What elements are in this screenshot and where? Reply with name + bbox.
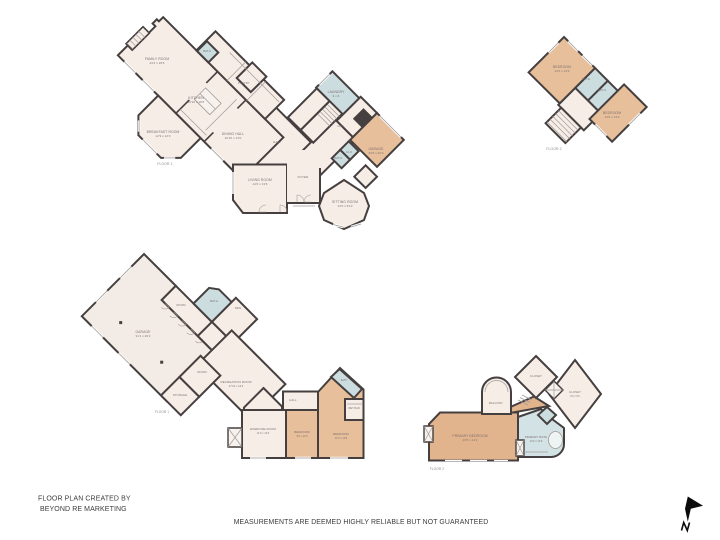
- svg-text:BEYOND RE MARKETING: BEYOND RE MARKETING: [40, 506, 127, 513]
- svg-text:FLOOR 1: FLOOR 1: [157, 162, 172, 166]
- svg-text:FLOOR PLAN CREATED BY: FLOOR PLAN CREATED BY: [38, 496, 131, 503]
- svg-text:9'0 x 12'9: 9'0 x 12'9: [296, 435, 308, 438]
- svg-text:BATH: BATH: [582, 77, 590, 81]
- svg-text:19'10 x 18'6: 19'10 x 18'6: [188, 100, 205, 104]
- svg-text:HALL: HALL: [289, 398, 297, 402]
- svg-text:14'0 x 13'0: 14'0 x 13'0: [605, 115, 620, 119]
- svg-text:BEDROOM: BEDROOM: [294, 430, 310, 434]
- svg-text:RECREATION ROOM: RECREATION ROOM: [220, 380, 252, 384]
- svg-text:BALCONY: BALCONY: [489, 401, 503, 405]
- svg-text:31'1 x 40'2: 31'1 x 40'2: [136, 334, 151, 338]
- svg-text:12'0 x 10'0: 12'0 x 10'0: [530, 440, 543, 443]
- svg-text:FOYER: FOYER: [298, 175, 310, 179]
- svg-text:HALL: HALL: [273, 140, 281, 144]
- svg-text:CLOSET: CLOSET: [569, 390, 581, 394]
- svg-text:CLOSET: CLOSET: [530, 374, 542, 378]
- svg-text:13'0 x 9'10: 13'0 x 9'10: [338, 204, 353, 208]
- svg-text:BEDROOM: BEDROOM: [333, 432, 349, 436]
- svg-text:PRIMARY BATH: PRIMARY BATH: [525, 435, 548, 439]
- svg-text:20'5 x 14'2: 20'5 x 14'2: [463, 438, 478, 442]
- svg-text:ROOM: ROOM: [197, 370, 207, 374]
- svg-text:BATH: BATH: [334, 156, 342, 160]
- svg-text:WET BAR: WET BAR: [348, 407, 360, 410]
- svg-text:BATH: BATH: [598, 88, 606, 92]
- svg-text:DEN: DEN: [235, 306, 241, 310]
- svg-text:14'0 x 13'0: 14'0 x 13'0: [555, 69, 570, 73]
- svg-text:FLOOR 2: FLOOR 2: [546, 147, 561, 151]
- svg-text:27'10 x 14'2: 27'10 x 14'2: [229, 385, 244, 388]
- svg-text:11'6 x 12'9: 11'6 x 12'9: [257, 432, 270, 435]
- svg-text:HALL: HALL: [338, 124, 345, 128]
- svg-text:BATH: BATH: [203, 49, 211, 53]
- svg-text:14'0 x 13'6: 14'0 x 13'6: [253, 182, 268, 186]
- svg-text:ROOM: ROOM: [176, 303, 186, 307]
- svg-text:12'9 x 12'0: 12'9 x 12'0: [156, 134, 171, 138]
- svg-text:23'4 x 18'6: 23'4 x 18'6: [150, 61, 165, 65]
- svg-text:FLOOR 2: FLOOR 2: [430, 467, 444, 471]
- svg-text:STORAGE: STORAGE: [173, 393, 187, 397]
- svg-text:20'5 x 20'0: 20'5 x 20'0: [369, 151, 384, 155]
- svg-text:PANTRY: PANTRY: [238, 81, 250, 85]
- svg-text:CLO: CLO: [346, 150, 353, 154]
- svg-text:FLOOR 1: FLOOR 1: [155, 410, 169, 414]
- svg-text:9 x 6: 9 x 6: [333, 94, 340, 98]
- svg-text:BATH: BATH: [341, 379, 348, 382]
- svg-text:BATH: BATH: [210, 299, 218, 303]
- svg-text:9'0 x 9'0: 9'0 x 9'0: [570, 396, 580, 398]
- svg-text:EXERCISE ROOM: EXERCISE ROOM: [250, 427, 276, 431]
- svg-text:22'10 x 13'0: 22'10 x 13'0: [225, 136, 242, 140]
- svg-text:MEASUREMENTS ARE DEEMED HIGHLY: MEASUREMENTS ARE DEEMED HIGHLY RELIABLE …: [234, 519, 489, 526]
- svg-text:11'6 x 14'9: 11'6 x 14'9: [335, 437, 348, 440]
